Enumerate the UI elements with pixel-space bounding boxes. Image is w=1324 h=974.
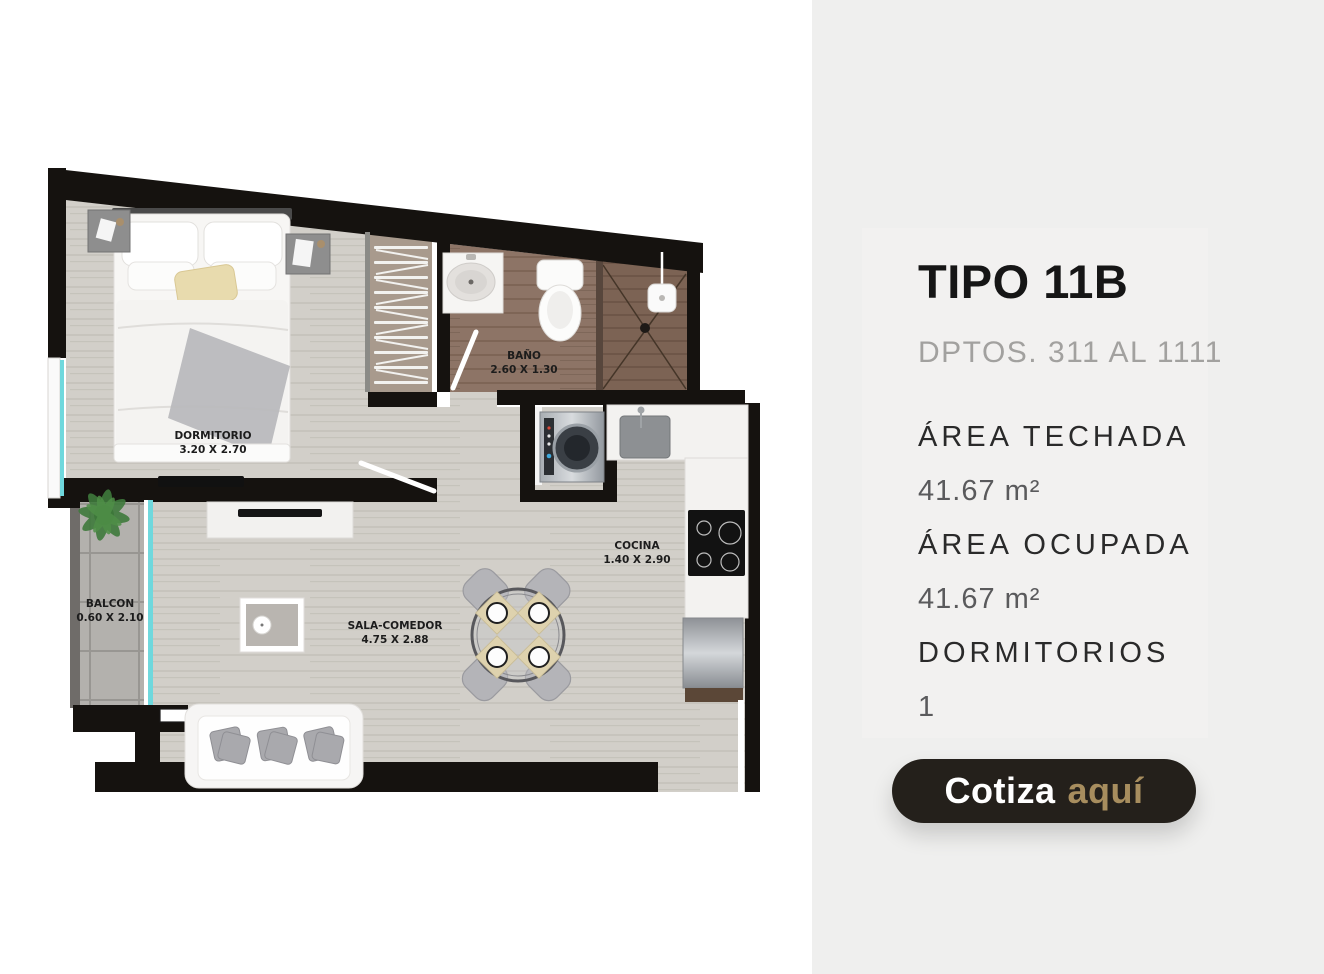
kitchen-shelf — [685, 688, 743, 702]
unit-range-subtitle: DPTOS. 311 AL 1111 — [918, 336, 1223, 370]
coffee-table — [240, 598, 304, 652]
bedroom-window — [48, 358, 60, 498]
nightstand-left — [88, 210, 130, 252]
toilet — [537, 260, 583, 341]
spec-list: ÁREA TECHADA 41.67 m² ÁREA OCUPADA 41.67… — [918, 422, 1193, 746]
spec-value-area-ocupada: 41.67 m² — [918, 584, 1193, 614]
quote-button[interactable]: Cotiza aquí — [892, 759, 1196, 823]
shower-drain — [640, 323, 650, 333]
spec-value-dormitorios: 1 — [918, 692, 1193, 722]
spec-label-area-ocupada: ÁREA OCUPADA — [918, 530, 1193, 560]
label-dormitorio-dims: 3.20 X 2.70 — [179, 444, 246, 456]
tv — [238, 509, 322, 517]
quote-button-label: Cotiza — [944, 770, 1055, 812]
bed — [112, 208, 292, 462]
label-cocina: COCINA — [614, 540, 660, 552]
wall-tv — [158, 476, 244, 487]
sofa — [185, 704, 363, 788]
unit-type-title: TIPO 11B — [918, 254, 1128, 309]
label-bano-dims: 2.60 X 1.30 — [490, 364, 557, 376]
stove — [688, 510, 745, 576]
label-sala-comedor-dims: 4.75 X 2.88 — [361, 634, 428, 646]
label-dormitorio: DORMITORIO — [174, 430, 251, 442]
tv-console — [207, 502, 353, 538]
refrigerator — [683, 618, 743, 688]
quote-button-accent-label: aquí — [1067, 770, 1143, 812]
entrance-door — [738, 700, 744, 792]
floorplan-image: DORMITORIO 3.20 X 2.70 BAÑO 2.60 X 1.30 … — [40, 160, 760, 808]
spec-label-dormitorios: DORMITORIOS — [918, 638, 1193, 668]
info-panel: TIPO 11B DPTOS. 311 AL 1111 ÁREA TECHADA… — [812, 0, 1324, 974]
spec-value-area-techada: 41.67 m² — [918, 476, 1193, 506]
label-balcon: BALCON — [86, 598, 134, 610]
balcony-glass — [148, 500, 153, 705]
label-bano: BAÑO — [507, 349, 541, 362]
label-sala-comedor: SALA-COMEDOR — [348, 620, 443, 632]
label-balcon-dims: 0.60 X 2.10 — [76, 612, 143, 624]
spec-label-area-techada: ÁREA TECHADA — [918, 422, 1193, 452]
nightstand-right — [286, 234, 330, 274]
kitchen-sink — [620, 416, 670, 458]
washing-machine — [535, 407, 604, 485]
balcony-glass-frame — [144, 500, 148, 705]
label-cocina-dims: 1.40 X 2.90 — [603, 554, 670, 566]
bathroom-sink — [443, 253, 503, 313]
